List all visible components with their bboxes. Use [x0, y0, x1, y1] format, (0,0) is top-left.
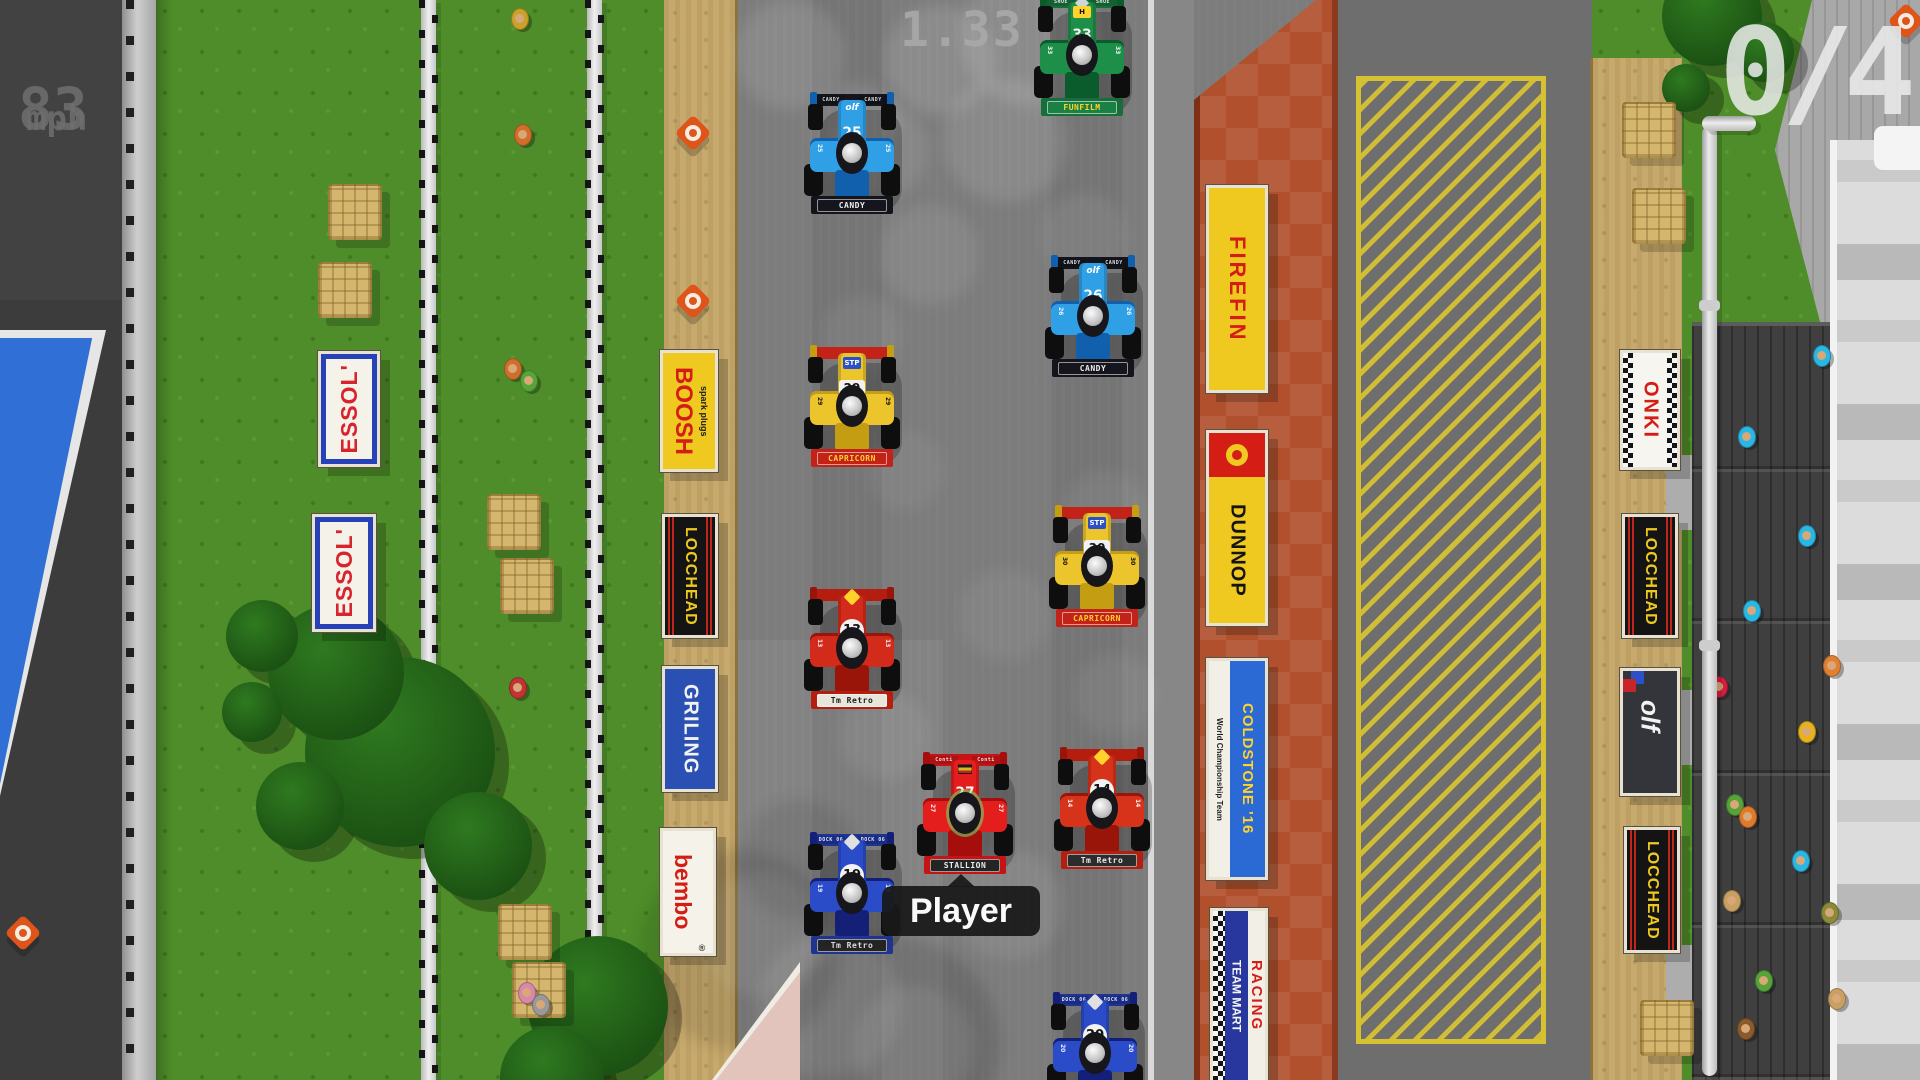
wall-shadow: [156, 0, 172, 1080]
spectator: [531, 993, 553, 1019]
hud-lap-counter: 0/4: [1719, 14, 1906, 134]
banner-olf: olf: [1620, 668, 1680, 796]
banner-griling: GRILING: [662, 666, 718, 792]
spectator: [513, 123, 535, 149]
game-viewport[interactable]: 14 TH 83 mph 1.33 0/4 Player ESSOL'ESSOL…: [0, 0, 1920, 1080]
car-team-label: Tm Retro: [1067, 854, 1137, 867]
car-27: ContiConti27STALLION2727: [917, 754, 1013, 876]
speed-unit: mph: [26, 101, 87, 138]
track-edge-line: [1148, 0, 1154, 1080]
hay-bale: [487, 494, 541, 550]
tree: [222, 682, 282, 742]
spectator: [1754, 969, 1776, 995]
car-team-label: STALLION: [930, 859, 1000, 872]
car-team-label: Tm Retro: [817, 694, 887, 707]
car-14: 14Tm Retro1414: [1054, 749, 1150, 871]
banner-essol-1: ESSOL': [318, 351, 380, 467]
spectator: [1742, 599, 1764, 625]
pipe-joint: [1699, 300, 1720, 311]
hud-race-time: 1.33: [900, 2, 1024, 58]
track-shoulder: [1154, 0, 1194, 1080]
walkway: [1830, 140, 1920, 1080]
spectator: [1797, 720, 1819, 746]
spectator: [1791, 849, 1813, 875]
hay-bale: [318, 262, 372, 318]
hay-bale: [1640, 1000, 1694, 1056]
car-team-label: CANDY: [817, 199, 887, 212]
player-name-tag: Player: [882, 886, 1040, 936]
tree: [226, 600, 298, 672]
banner-locchead-3: LOCCHEAD: [1624, 827, 1680, 953]
guardrail-posts: [598, 0, 604, 1080]
spectator: [1736, 1017, 1758, 1043]
car-team-label: CAPRICORN: [1062, 612, 1132, 625]
spectator: [1722, 889, 1744, 915]
banner-dunnop: DUNNOP: [1206, 430, 1268, 626]
car-25: CANDYCANDYolf25CANDY2525: [804, 94, 900, 216]
banner-locchead-1: LOCCHEAD: [662, 514, 718, 638]
smoke-puff: [1073, 653, 1157, 737]
car-33: SHOESHOEH33FUNFILM3333: [1034, 0, 1130, 118]
pipe-joint: [1699, 640, 1720, 651]
banner-onki: ONKI: [1620, 350, 1680, 470]
hay-bale: [1632, 188, 1686, 244]
pit-box-hatched-area: [1356, 76, 1546, 1044]
runoff-patch: [0, 0, 122, 300]
car-team-label: FUNFILM: [1047, 101, 1117, 114]
banner-locchead-2: LOCCHEAD: [1622, 514, 1678, 638]
tree: [256, 762, 344, 850]
spectator: [519, 369, 541, 395]
hay-bale: [328, 184, 382, 240]
car-team-label: CANDY: [1058, 362, 1128, 375]
spectator: [1812, 344, 1834, 370]
wall-posts: [126, 0, 134, 1080]
car-29: STP29CAPRICORN2929: [804, 347, 900, 469]
smoke-puff: [880, 205, 980, 305]
spectator: [1797, 524, 1819, 550]
spectator: [1827, 987, 1849, 1013]
banner-firefin: FIREFIN: [1206, 185, 1268, 393]
banner-bembo: bembo®: [660, 828, 716, 956]
hay-bale: [500, 558, 554, 614]
guardrail-posts: [432, 0, 438, 1080]
spectator: [1820, 901, 1842, 927]
hay-bale: [498, 904, 552, 960]
tree: [424, 792, 532, 900]
car-26: CANDYCANDYolf26CANDY2626: [1045, 257, 1141, 379]
spectator: [1738, 805, 1760, 831]
smoke-puff: [959, 569, 1051, 661]
spectator: [1737, 425, 1759, 451]
banner-coldstone: World Championship TeamCOLDSTONE '16: [1206, 658, 1268, 880]
spectator: [508, 676, 530, 702]
banner-teammart: TEAM MARTRACING: [1210, 908, 1268, 1080]
car-13: 13Tm Retro1313: [804, 589, 900, 711]
spectator: [1822, 654, 1844, 680]
name-tag-pointer: [947, 874, 975, 887]
guardrail-posts: [585, 0, 591, 1080]
car-20: DOCK 06DOCK 0620Tm Retro2020: [1047, 994, 1143, 1080]
guardrail-posts: [419, 0, 425, 1080]
banner-essol-2: ESSOL': [312, 514, 376, 632]
spectator: [510, 7, 532, 33]
car-team-label: Tm Retro: [817, 939, 887, 952]
car-30: STP30CAPRICORN3030: [1049, 507, 1145, 629]
car-team-label: CAPRICORN: [817, 452, 887, 465]
banner-boosh: BOOSHspark plugs: [660, 350, 718, 472]
hay-bale: [1622, 102, 1676, 158]
player-name: Player: [910, 892, 1012, 931]
railing-pipe: [1702, 126, 1717, 1076]
